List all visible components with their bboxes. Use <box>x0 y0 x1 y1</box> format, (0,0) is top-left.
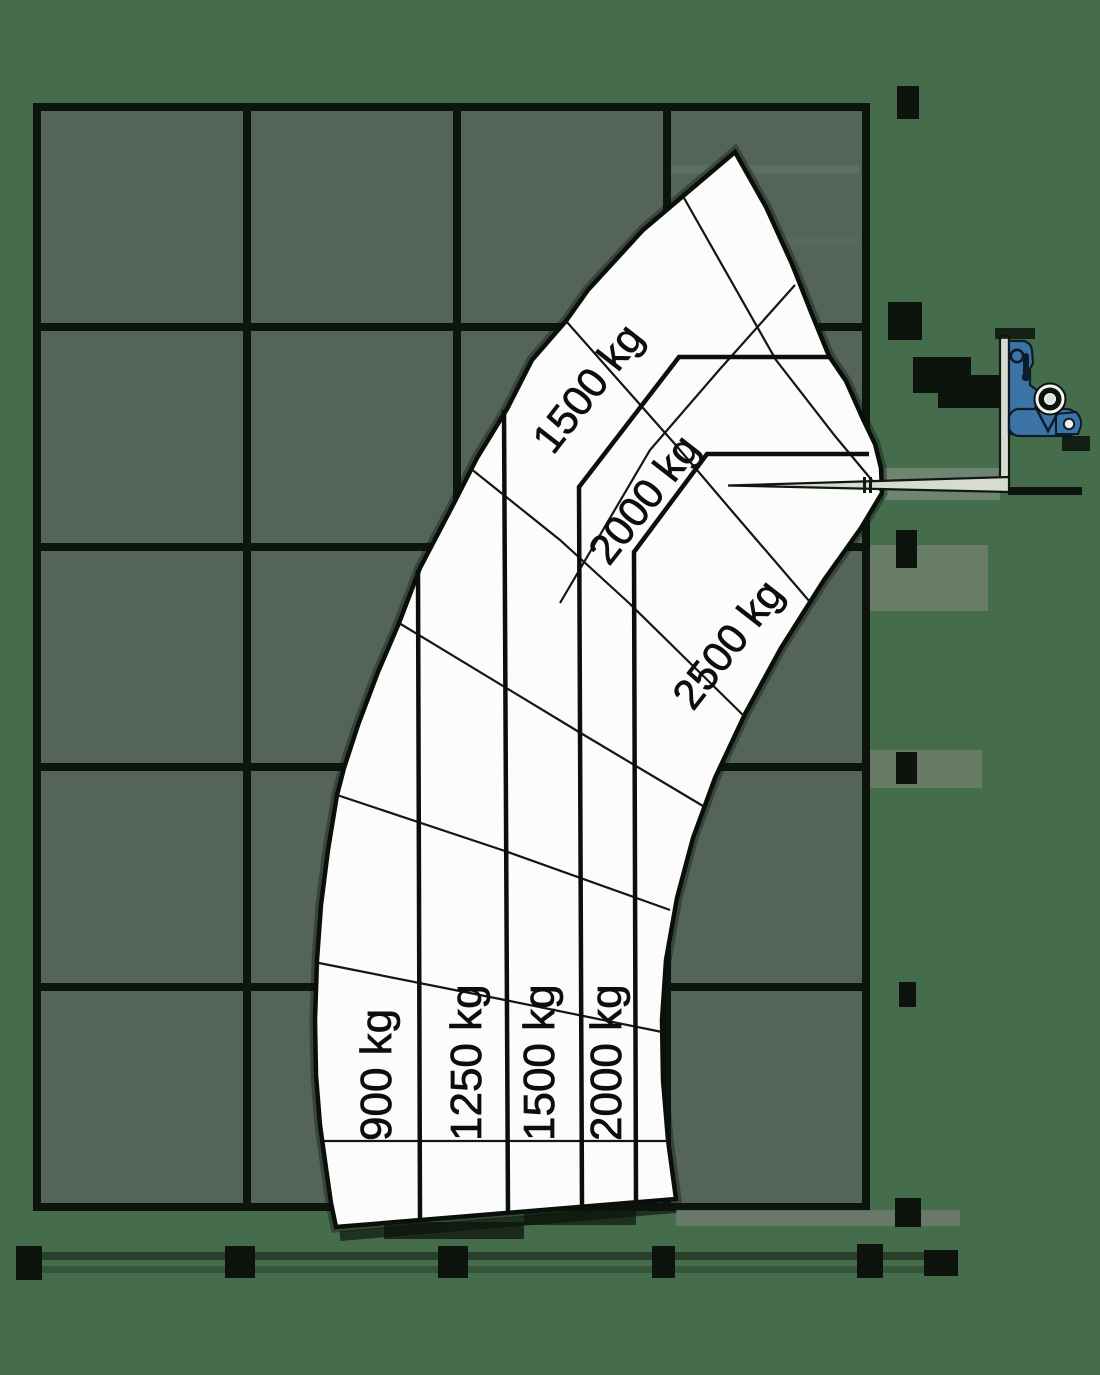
svg-text:900 kg: 900 kg <box>352 1009 401 1141</box>
svg-text:1500 kg: 1500 kg <box>515 984 564 1141</box>
svg-text:2000 kg: 2000 kg <box>582 984 631 1141</box>
svg-text:1250 kg: 1250 kg <box>442 984 491 1141</box>
